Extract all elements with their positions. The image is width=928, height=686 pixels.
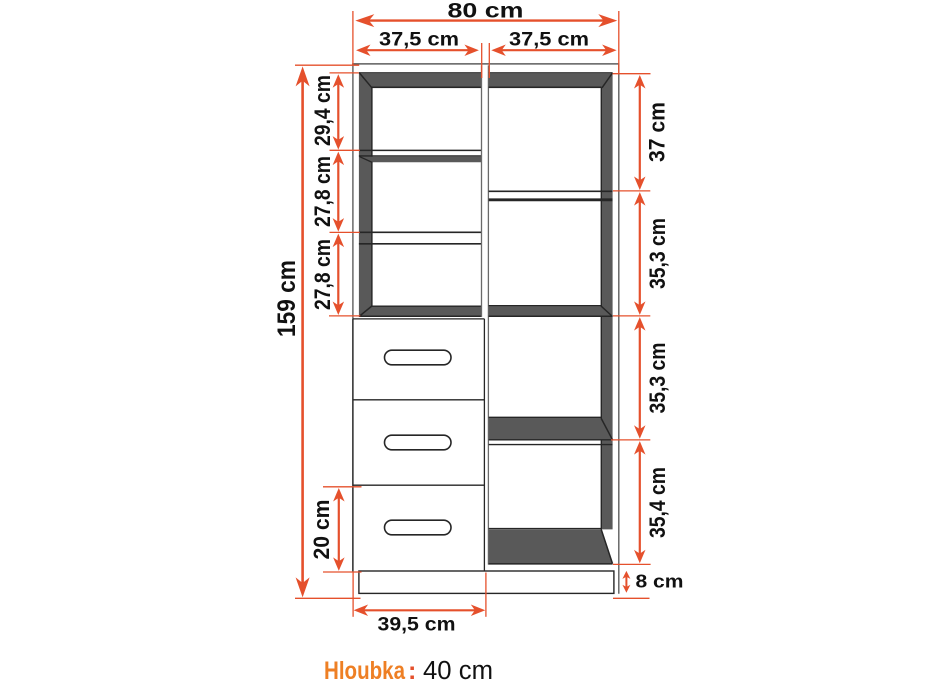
svg-text:35,3 cm: 35,3 cm <box>645 218 670 289</box>
svg-text:39,5 cm: 39,5 cm <box>378 614 456 636</box>
svg-text:27,8 cm: 27,8 cm <box>310 239 335 310</box>
svg-text:80 cm: 80 cm <box>448 0 524 23</box>
svg-text::: : <box>408 657 416 685</box>
svg-text:8 cm: 8 cm <box>636 572 684 592</box>
svg-text:35,3 cm: 35,3 cm <box>645 343 670 414</box>
svg-text:40 cm: 40 cm <box>423 657 493 685</box>
svg-text:27,8 cm: 27,8 cm <box>310 156 335 227</box>
svg-text:37,5 cm: 37,5 cm <box>379 29 459 50</box>
svg-text:20 cm: 20 cm <box>309 500 334 560</box>
svg-text:Hloubka: Hloubka <box>324 657 406 685</box>
svg-text:159 cm: 159 cm <box>273 260 301 337</box>
svg-text:37,5 cm: 37,5 cm <box>509 29 589 50</box>
svg-text:35,4 cm: 35,4 cm <box>645 467 670 538</box>
svg-text:29,4 cm: 29,4 cm <box>310 75 335 146</box>
svg-text:37 cm: 37 cm <box>644 102 669 162</box>
